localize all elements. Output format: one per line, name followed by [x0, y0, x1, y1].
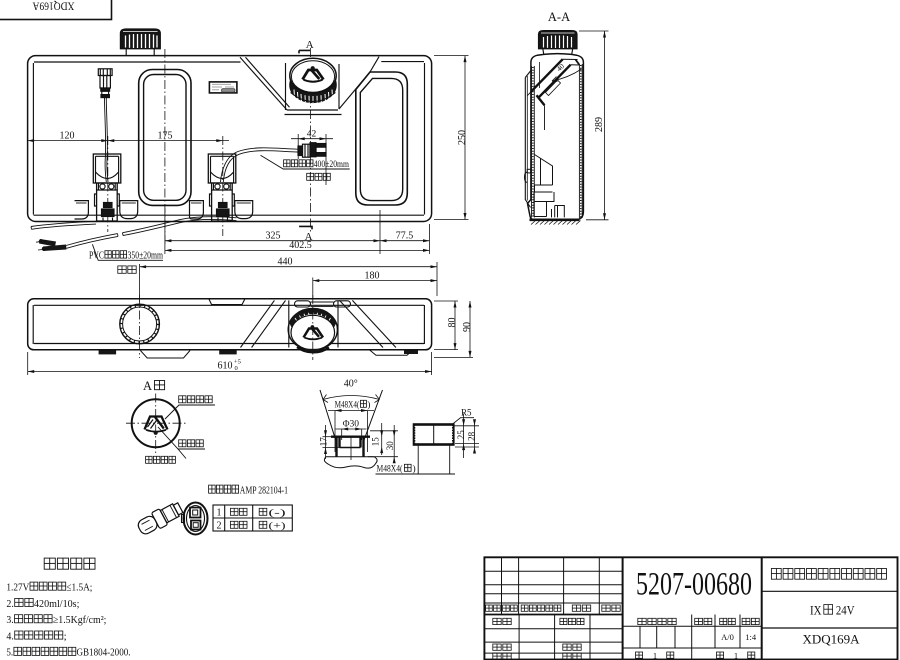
svg-text:1:4: 1:4: [745, 632, 757, 642]
svg-text:XDQ169A: XDQ169A: [802, 632, 860, 647]
svg-text:25: 25: [456, 430, 466, 440]
svg-text:1: 1: [653, 651, 657, 660]
svg-text:5207-00680: 5207-00680: [636, 567, 752, 603]
svg-text:PVC: PVC: [89, 250, 104, 261]
svg-text:40°: 40°: [344, 379, 358, 390]
svg-text:(+): (+): [269, 521, 286, 532]
svg-text:A: A: [143, 379, 152, 393]
svg-text:;: ;: [64, 630, 67, 642]
svg-text:): ): [413, 464, 416, 475]
svg-text:AMP 282104-1: AMP 282104-1: [240, 485, 288, 497]
svg-text:42: 42: [307, 130, 317, 140]
svg-text:420ml/10s;: 420ml/10s;: [34, 598, 79, 610]
svg-text:24V: 24V: [836, 603, 855, 618]
svg-text:5.: 5.: [6, 647, 13, 659]
svg-text:325: 325: [266, 231, 281, 242]
svg-text:A-A: A-A: [548, 10, 570, 24]
svg-text:120: 120: [60, 130, 75, 141]
svg-text:289: 289: [594, 117, 605, 132]
svg-text:17: 17: [318, 437, 328, 447]
svg-text:GB1804-2000.: GB1804-2000.: [77, 647, 131, 659]
svg-text:≤1.5A;: ≤1.5A;: [66, 582, 92, 594]
svg-text:0: 0: [235, 365, 238, 372]
svg-text:3.: 3.: [6, 614, 14, 626]
svg-text:402.5: 402.5: [289, 240, 312, 251]
svg-text:440: 440: [278, 257, 293, 268]
svg-text:15: 15: [370, 437, 380, 447]
svg-text:30: 30: [385, 441, 395, 451]
svg-text:IX: IX: [810, 603, 822, 618]
svg-text:80: 80: [447, 318, 458, 328]
svg-text:90: 90: [462, 322, 473, 332]
svg-text:1.27V: 1.27V: [6, 582, 29, 594]
svg-text:2: 2: [217, 521, 222, 532]
svg-text:M48X4(: M48X4(: [377, 464, 403, 475]
svg-text:180: 180: [365, 270, 380, 281]
svg-text:M48X4(: M48X4(: [335, 400, 360, 411]
svg-text:A/0: A/0: [721, 632, 734, 642]
svg-text:77.5: 77.5: [396, 231, 414, 242]
svg-text:R5: R5: [461, 408, 472, 418]
svg-text:250: 250: [457, 130, 468, 145]
svg-text:28: 28: [467, 431, 477, 441]
svg-text:2.: 2.: [6, 598, 14, 610]
svg-text:XDQ169A: XDQ169A: [32, 0, 74, 14]
svg-text:(-): (-): [269, 508, 286, 519]
svg-text:4.: 4.: [6, 630, 14, 642]
svg-text:175: 175: [158, 130, 173, 141]
svg-text:350±20mm: 350±20mm: [128, 250, 164, 261]
svg-text:A: A: [306, 39, 314, 51]
svg-text:1: 1: [734, 651, 738, 660]
svg-text:400±20mm: 400±20mm: [314, 160, 350, 170]
svg-text:610: 610: [218, 360, 233, 371]
svg-text:≥1.5Kgf/cm²;: ≥1.5Kgf/cm²;: [53, 614, 107, 626]
svg-text:): ): [367, 400, 370, 411]
svg-text:1: 1: [217, 508, 222, 519]
